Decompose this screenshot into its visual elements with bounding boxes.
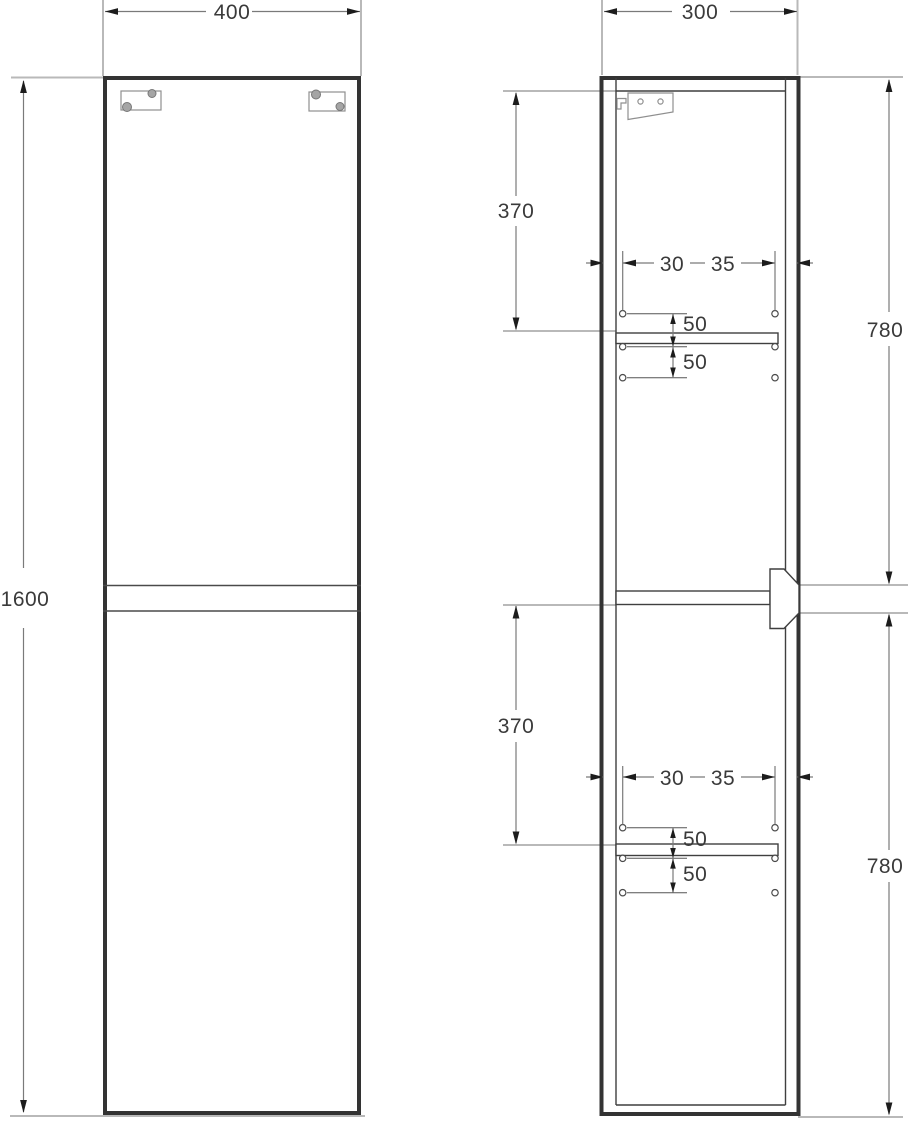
label-lower-hole-inset-right: 35 bbox=[711, 767, 735, 790]
label-upper-hole-inset-left: 30 bbox=[660, 253, 684, 276]
label-lower-hole-inset-left: 30 bbox=[660, 767, 684, 790]
front-cabinet-outline bbox=[105, 78, 359, 1113]
side-view bbox=[602, 78, 800, 1114]
label-upper-hole-inset-right: 35 bbox=[711, 253, 735, 276]
bracket-hook bbox=[617, 99, 626, 110]
door-handle bbox=[770, 569, 799, 629]
label-lower-shelf-offset: 370 bbox=[498, 715, 535, 738]
label-upper-hole-spacing-1: 50 bbox=[683, 313, 707, 336]
label-upper-hole-spacing-2: 50 bbox=[683, 351, 707, 374]
middle-fixed-panel bbox=[616, 591, 770, 605]
label-upper-door-height: 780 bbox=[867, 319, 904, 342]
label-front-width: 400 bbox=[214, 1, 251, 24]
label-lower-hole-spacing-1: 50 bbox=[683, 828, 707, 851]
wall-bracket-right bbox=[309, 90, 345, 111]
label-upper-shelf-offset: 370 bbox=[498, 200, 535, 223]
wall-bracket-left bbox=[121, 90, 161, 112]
label-side-depth: 300 bbox=[682, 1, 719, 24]
front-view bbox=[103, 78, 361, 1113]
label-lower-door-height: 780 bbox=[867, 855, 904, 878]
cabinet-technical-drawing: 400 300 1600 370 370 780 780 30 35 30 35… bbox=[0, 0, 908, 1121]
extension-lines bbox=[10, 0, 908, 1117]
label-lower-hole-spacing-2: 50 bbox=[683, 863, 707, 886]
dimension-lines bbox=[24, 12, 890, 1115]
hanging-bracket bbox=[617, 93, 673, 120]
dimension-arrowheads bbox=[20, 8, 892, 1115]
drawing-svg: 400 300 1600 370 370 780 780 30 35 30 35… bbox=[0, 0, 908, 1121]
dimension-labels: 400 300 1600 370 370 780 780 30 35 30 35… bbox=[1, 1, 904, 886]
label-front-height: 1600 bbox=[1, 588, 50, 611]
